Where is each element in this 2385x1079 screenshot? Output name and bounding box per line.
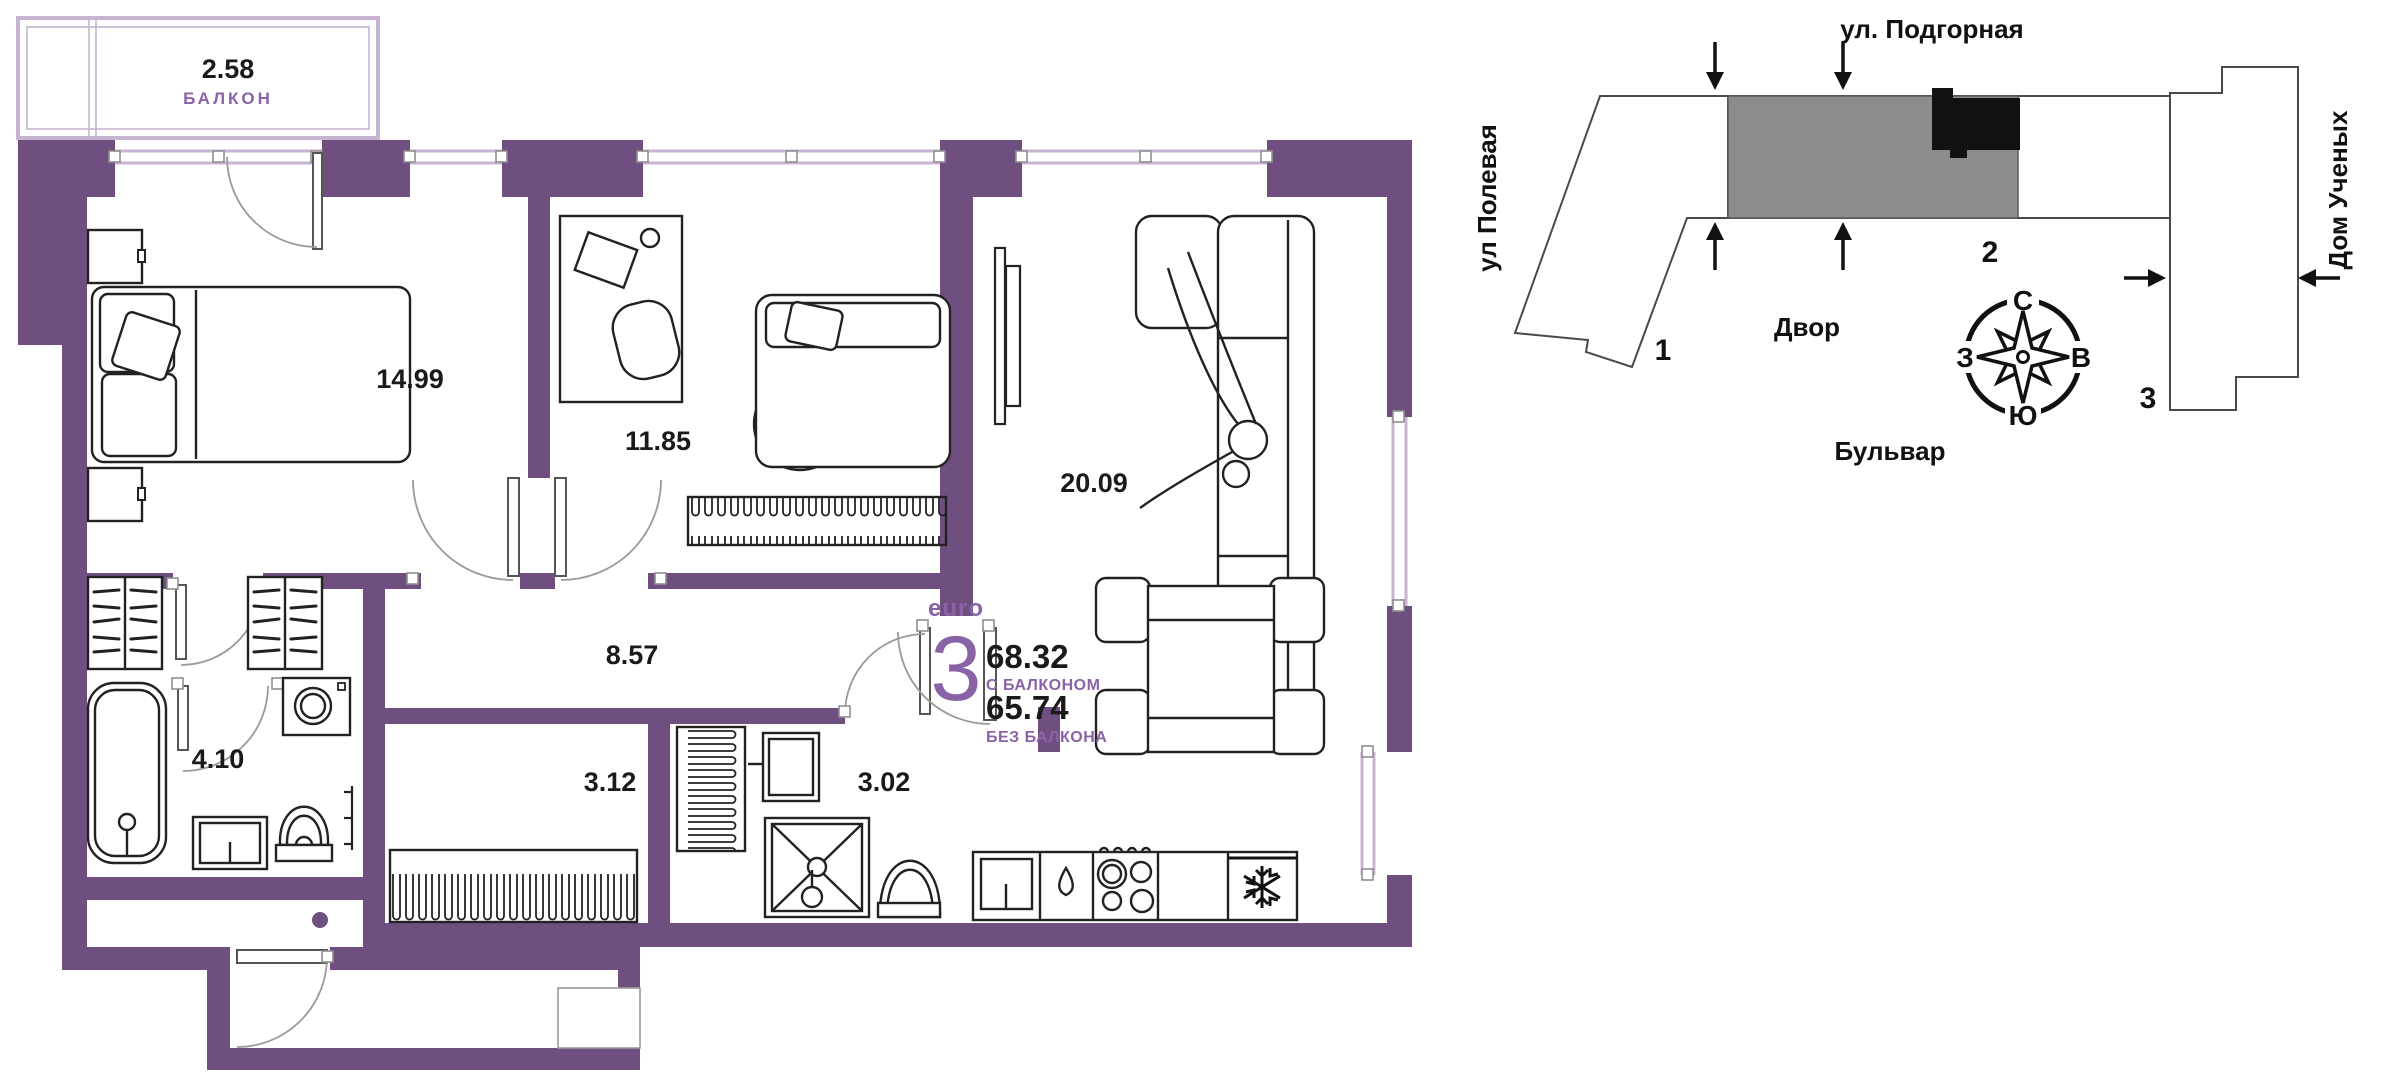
entrance-step bbox=[558, 988, 640, 1048]
shower-tray bbox=[765, 818, 869, 917]
bedroom-main-door bbox=[413, 478, 519, 580]
compass-south: Ю bbox=[2009, 400, 2038, 431]
column-dot bbox=[312, 912, 328, 928]
tv-panel bbox=[995, 248, 1020, 424]
wardrobe bbox=[248, 577, 322, 669]
site-building-3 bbox=[2170, 67, 2298, 410]
site-building-1 bbox=[1515, 96, 1728, 367]
nightstand bbox=[88, 230, 145, 283]
room-area: 3.02 bbox=[858, 767, 911, 797]
desk bbox=[560, 216, 684, 402]
area-with-balcony: 68.32 bbox=[986, 638, 1069, 675]
room-area: 11.85 bbox=[625, 426, 691, 456]
bathroom-sink bbox=[193, 817, 267, 869]
balcony bbox=[18, 18, 378, 138]
floorplan-page: 2.58 БАЛКОН 14.99 11.85 20.09 8.57 4.10 … bbox=[0, 0, 2385, 1079]
bedroom-second-door bbox=[407, 478, 666, 584]
bed-main bbox=[92, 287, 410, 462]
toilet bbox=[276, 807, 332, 861]
without-balcony-label: БЕЗ БАЛКОНА bbox=[986, 729, 1107, 746]
washing-machine bbox=[283, 678, 350, 735]
balcony-label: БАЛКОН bbox=[183, 89, 273, 108]
plan-canvas: 2.58 БАЛКОН 14.99 11.85 20.09 8.57 4.10 … bbox=[0, 0, 2385, 1079]
area-without-balcony: 65.74 bbox=[986, 689, 1069, 726]
wardrobe bbox=[88, 577, 162, 669]
site-plan: С Ю З В ул. Подгорная ул Полевая Дом Уче… bbox=[1472, 14, 2353, 466]
bathtub bbox=[88, 683, 166, 863]
room-area: 20.09 bbox=[1060, 468, 1128, 498]
window-bedroom-main bbox=[410, 151, 502, 163]
apartment-summary: euro 3 68.32 С БАЛКОНОМ 65.74 БЕЗ БАЛКОН… bbox=[928, 595, 1107, 746]
room-area: 8.57 bbox=[606, 640, 659, 670]
boulevard-label: Бульвар bbox=[1835, 436, 1946, 466]
kitchen-sink-icon bbox=[981, 859, 1032, 909]
window-living-side bbox=[1393, 417, 1406, 606]
building-number: 3 bbox=[2140, 382, 2157, 415]
street-left: ул Полевая bbox=[1472, 124, 1502, 272]
balcony-door bbox=[227, 153, 322, 249]
window-kitchen-side bbox=[1362, 752, 1374, 875]
landmark-right: Дом Ученых bbox=[2323, 110, 2353, 269]
radiator-unit bbox=[677, 727, 745, 851]
toilet bbox=[878, 861, 940, 917]
bed-second bbox=[754, 295, 950, 470]
building-number: 2 bbox=[1982, 236, 1999, 269]
compass-north: С bbox=[2013, 285, 2033, 316]
courtyard-label: Двор bbox=[1774, 312, 1840, 342]
building-number: 1 bbox=[1655, 334, 1672, 367]
compass-icon: С Ю З В bbox=[1949, 284, 2096, 431]
balcony-area: 2.58 bbox=[202, 54, 255, 84]
site-building-current bbox=[1932, 88, 2020, 158]
wardrobe-unit bbox=[390, 850, 637, 922]
shower-room-door bbox=[839, 620, 930, 717]
entrance-door bbox=[237, 950, 333, 1047]
rooms-count: 3 bbox=[930, 618, 981, 720]
nightstand bbox=[88, 468, 145, 521]
room-area: 4.10 bbox=[192, 744, 245, 774]
street-top: ул. Подгорная bbox=[1840, 14, 2023, 44]
shower-sink bbox=[748, 733, 819, 801]
kitchen-counter bbox=[973, 848, 1297, 920]
radiator-bench bbox=[688, 497, 946, 545]
room-area: 14.99 bbox=[376, 364, 444, 394]
compass-west: З bbox=[1956, 342, 1974, 373]
compass-east: В bbox=[2071, 342, 2091, 373]
room-area: 3.12 bbox=[584, 767, 637, 797]
towel-radiator bbox=[344, 786, 352, 850]
